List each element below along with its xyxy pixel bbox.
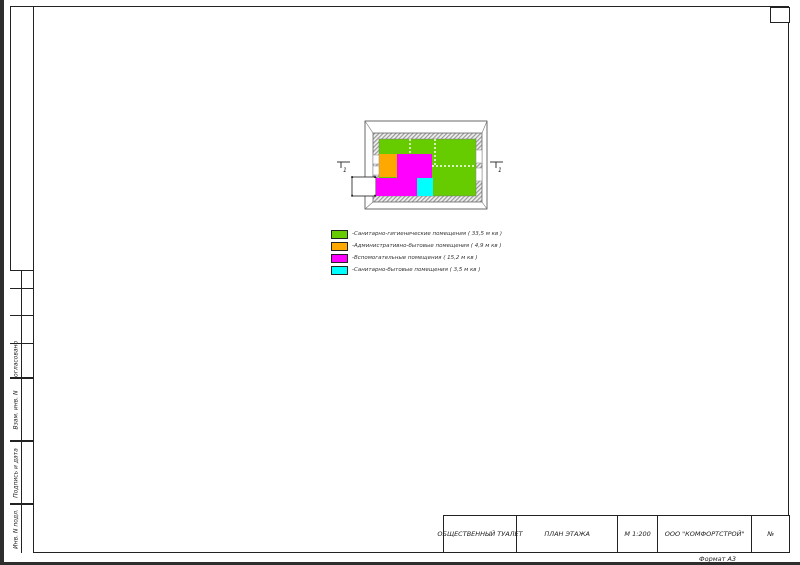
room-administrative: [379, 154, 397, 177]
legend-item-administrative: -Административно-бытовые помещения ( 4,9…: [331, 242, 502, 251]
legend-label: -Административно-бытовые помещения ( 4,9…: [352, 242, 502, 251]
section-mark-right-label: 1: [498, 167, 502, 174]
stamp-label: Инв. N подл.: [10, 505, 21, 553]
legend-swatch-green: [331, 230, 348, 239]
drawing-sheet: Согласовано Взам. инв. N Подпись и дата …: [0, 0, 800, 565]
stamp-empty-row: [10, 270, 33, 288]
frame-inner-left-line: [33, 6, 34, 553]
title-block-sheet-name: ПЛАН ЭТАЖА: [516, 516, 617, 552]
legend: -Санитарно-гигиенические помещения ( 33,…: [331, 230, 502, 278]
page-edge-left: [0, 0, 4, 565]
legend-item-sanitary-domestic: -Санитарно-бытовые помещения ( 3,5 м кв …: [331, 266, 502, 275]
stamp-row-podpis-data: Подпись и дата: [10, 440, 33, 503]
stamp-empty-row: [10, 315, 33, 343]
floor-plan: 1 1: [336, 116, 508, 214]
stamp-row-vzam-inv: Взам. инв. N: [10, 377, 33, 440]
title-block-project-name: ОБЩЕСТВЕННЫЙ ТУАЛЕТ: [444, 516, 516, 552]
legend-swatch-cyan: [331, 266, 348, 275]
stamp-label: Взам. инв. N: [10, 379, 21, 440]
legend-label: -Санитарно-бытовые помещения ( 3,5 м кв …: [352, 266, 480, 275]
legend-swatch-magenta: [331, 254, 348, 263]
stamp-divider: [21, 344, 22, 377]
stamp-empty-row: [10, 288, 33, 315]
legend-item-auxiliary: -Вспомогательные помещения ( 15,2 м кв ): [331, 254, 502, 263]
stamp-divider: [21, 379, 22, 440]
title-block: ОБЩЕСТВЕННЫЙ ТУАЛЕТ ПЛАН ЭТАЖА М 1:200 О…: [443, 515, 790, 553]
drawing-frame: [10, 6, 789, 553]
title-block-organization: ООО "КОМФОРТСТРОЙ": [657, 516, 751, 552]
title-block-scale: М 1:200: [617, 516, 657, 552]
stamp-row-inv-podl: Инв. N подл.: [10, 503, 33, 553]
porch: [352, 177, 376, 196]
stamp-row-soglasovano: Согласовано: [10, 343, 33, 377]
title-block-sheet-number: №: [751, 516, 789, 552]
stamp-divider: [21, 505, 22, 553]
legend-item-sanitary-hygienic: -Санитарно-гигиенические помещения ( 33,…: [331, 230, 502, 239]
top-right-corner-box: [770, 7, 790, 23]
legend-swatch-orange: [331, 242, 348, 251]
legend-label: -Санитарно-гигиенические помещения ( 33,…: [352, 230, 502, 239]
section-mark-left-label: 1: [343, 167, 347, 174]
format-note: Формат А3: [699, 555, 736, 563]
stamp-divider: [21, 442, 22, 503]
stamp-label: Подпись и дата: [10, 442, 21, 503]
room-sanitary-domestic: [417, 178, 433, 196]
stamp-label: Согласовано: [10, 344, 21, 377]
legend-label: -Вспомогательные помещения ( 15,2 м кв ): [352, 254, 477, 263]
